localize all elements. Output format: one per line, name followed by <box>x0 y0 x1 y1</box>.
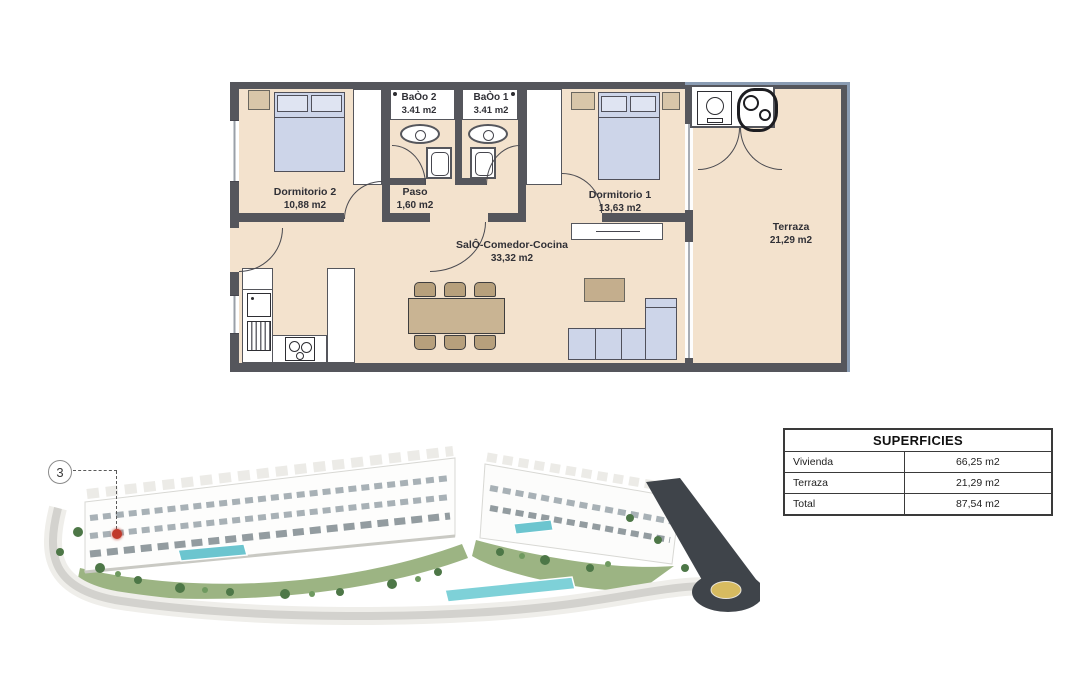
chair <box>444 282 466 297</box>
sink-bano1 <box>468 124 508 144</box>
sliding-door-salon <box>685 242 693 358</box>
chair <box>444 335 466 350</box>
label-paso: Paso 1,60 m2 <box>375 186 455 212</box>
table-row: Vivienda 66,25 m2 <box>785 452 1051 473</box>
tv-sideboard <box>571 223 663 240</box>
chair <box>414 282 436 297</box>
label-salon: SalÔ-Comedor-Cocina 33,32 m2 <box>412 239 612 265</box>
wardrobe-dorm2 <box>353 89 382 185</box>
unit-location-dot <box>112 529 122 539</box>
dining-table <box>408 298 505 334</box>
row-label: Terraza <box>785 473 905 493</box>
laundry-unit <box>690 85 775 128</box>
coffee-table <box>584 278 625 302</box>
unit-marker-label: 3 <box>56 465 63 480</box>
window-dormitorio2 <box>230 120 239 182</box>
door-terrace-left <box>698 128 740 170</box>
kitchen-tall-unit <box>327 268 355 363</box>
cooktop <box>285 337 315 361</box>
wall-hall-3 <box>488 213 526 222</box>
label-bano2: BaÒo 2 3.41 m2 <box>384 91 454 117</box>
unit-marker-circle: 3 <box>48 460 72 484</box>
wall-bottom <box>230 363 850 372</box>
marker-leader-line-v <box>116 471 117 529</box>
building-right <box>480 457 680 564</box>
nightstand-dorm1-right <box>662 92 680 110</box>
table-row: Terraza 21,29 m2 <box>785 473 1051 494</box>
door-terrace-right <box>740 128 782 170</box>
surfaces-table-title: SUPERFICIES <box>785 430 1051 452</box>
table-row: Total 87,54 m2 <box>785 494 1051 514</box>
kitchen-sink <box>247 293 271 317</box>
chair <box>474 335 496 350</box>
floor-plan: Dormitorio 2 10,88 m2 BaÒo 2 3.41 m2 BaÒ… <box>230 82 850 372</box>
row-value: 21,29 m2 <box>905 473 1051 493</box>
chair <box>474 282 496 297</box>
chair <box>414 335 436 350</box>
sofa <box>568 328 646 360</box>
label-bano1: BaÒo 1 3.41 m2 <box>456 91 526 117</box>
terrace-railing-top <box>685 82 850 85</box>
wall-bano-bottom-c <box>462 178 486 185</box>
row-value: 87,54 m2 <box>905 494 1051 514</box>
wall-hall-1 <box>230 213 344 222</box>
sliding-door-dormitorio1 <box>685 124 693 210</box>
nightstand-dorm2 <box>248 90 270 110</box>
sink-bano2 <box>400 124 440 144</box>
wall-hall-2 <box>382 213 430 222</box>
row-value: 66,25 m2 <box>905 452 1051 472</box>
nightstand-dorm1-left <box>571 92 595 110</box>
label-dormitorio2: Dormitorio 2 10,88 m2 <box>245 186 365 212</box>
bed-dormitorio2 <box>274 92 345 172</box>
kitchen-counter <box>242 268 273 363</box>
window-kitchen <box>230 295 239 334</box>
sofa-chaise <box>645 298 677 360</box>
door-entry <box>239 228 283 272</box>
marker-leader-line-h <box>73 470 117 471</box>
row-label: Vivienda <box>785 452 905 472</box>
label-terraza: Terraza 21,29 m2 <box>731 221 851 247</box>
label-dormitorio1: Dormitorio 1 13,63 m2 <box>560 189 680 215</box>
door-bano2 <box>392 145 426 185</box>
building-left <box>85 451 455 572</box>
toilet-bano2 <box>426 147 452 179</box>
washing-machine-icon <box>697 91 732 125</box>
bed-dormitorio1 <box>598 92 660 180</box>
brochure-page: Dormitorio 2 10,88 m2 BaÒo 2 3.41 m2 BaÒ… <box>0 0 1070 682</box>
surfaces-table: SUPERFICIES Vivienda 66,25 m2 Terraza 21… <box>783 428 1053 516</box>
wardrobe-dorm1 <box>526 89 562 185</box>
row-label: Total <box>785 494 905 514</box>
boiler-icon <box>737 88 778 132</box>
development-render <box>30 440 760 640</box>
dishwasher <box>247 321 271 351</box>
roundabout-center <box>711 582 741 599</box>
